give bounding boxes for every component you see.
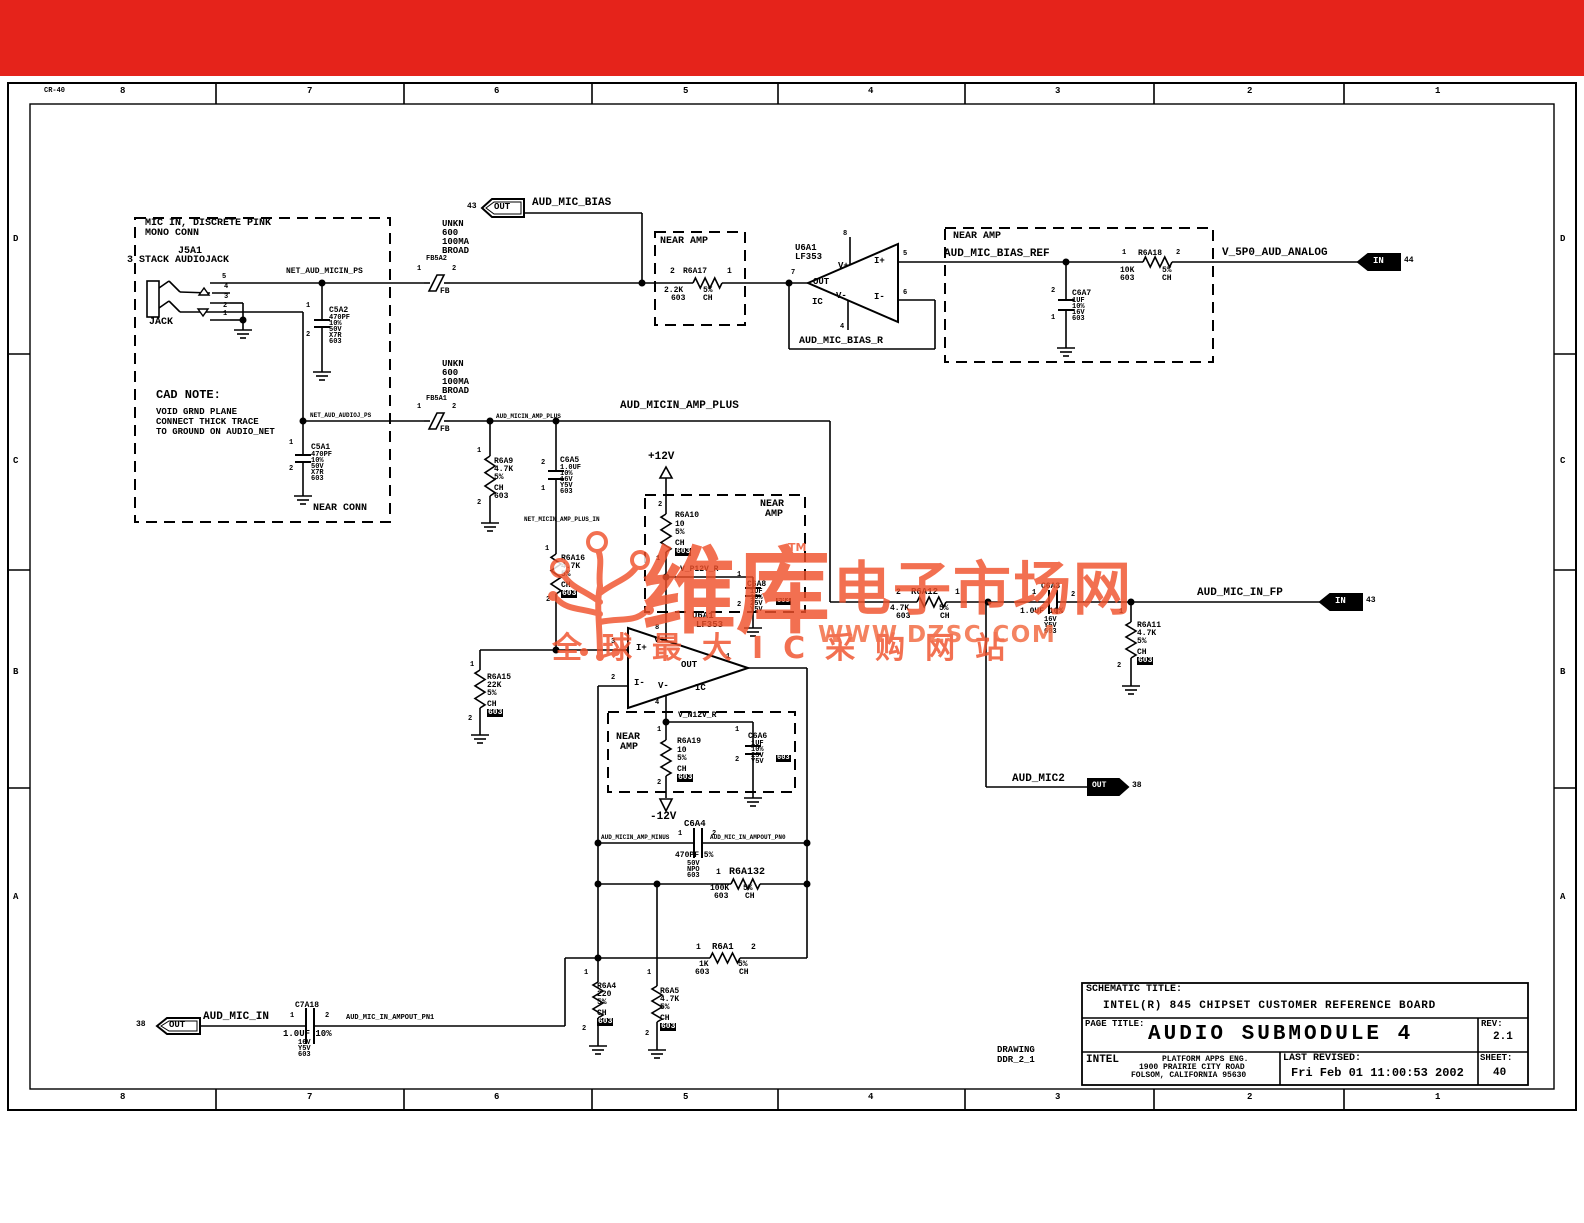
schematic-text: 1.0UF 10%: [283, 1030, 332, 1039]
pin-number: 2: [737, 602, 741, 609]
schematic-text: 603: [311, 476, 324, 483]
frame-zone-label: 4: [868, 1093, 873, 1102]
schematic-text: Y5V: [751, 759, 764, 766]
schematic-text: 603: [714, 893, 728, 901]
refdes: R6A19: [677, 738, 701, 746]
pin-number: 2: [896, 589, 901, 597]
schematic-text: CH: [1162, 275, 1172, 283]
schematic-text: CAD NOTE:: [156, 389, 221, 401]
schematic-text: AMP: [620, 743, 638, 753]
net-label: AUD_MICIN_AMP_PLUS: [496, 414, 561, 420]
pin-number: 1: [647, 970, 651, 977]
refdes: R6A10: [675, 512, 699, 520]
frame-zone-label: 3: [1055, 87, 1060, 96]
out-connector-label: OUT: [494, 203, 510, 212]
schematic-text: 603: [329, 339, 342, 346]
company-name: INTEL: [1086, 1055, 1119, 1066]
schematic-text: V+: [838, 262, 849, 271]
pin-number: 1: [223, 311, 227, 318]
refdes: FB5A2: [426, 256, 447, 263]
connector-number: 38: [1132, 782, 1142, 790]
pin-number: 2: [611, 675, 615, 682]
pin-number: 1: [541, 486, 545, 493]
pin-number: 1: [417, 266, 421, 273]
schematic-text: V-: [836, 292, 847, 301]
net-label: NET_MICIN_AMP_PLUS_IN: [524, 517, 600, 523]
net-label: AUD_MIC_IN_AMPOUT_PN1: [346, 1015, 434, 1022]
frame-zone-label: B: [13, 668, 18, 677]
pin-number: 1: [1051, 315, 1055, 322]
connector-number: 44: [1404, 257, 1414, 265]
schematic-text: 3 STACK AUDIOJACK: [127, 256, 229, 266]
frame-corner-label: CR-40: [44, 88, 65, 95]
frame-zone-label: 1: [1435, 87, 1440, 96]
schematic-text: CH: [940, 613, 950, 621]
schematic-text: I-: [634, 679, 645, 688]
pin-number: 1: [657, 727, 661, 734]
pin-number: 2: [546, 597, 550, 604]
schematic-text: NEAR AMP: [953, 232, 1001, 242]
pin-number: 1: [584, 970, 588, 977]
schematic-text: 1.0UF 10%: [1020, 608, 1063, 616]
out-connector-label: OUT: [169, 1021, 185, 1030]
schematic-text: LF353: [696, 621, 723, 630]
schematic-text: VOID GRND PLANE: [156, 408, 237, 417]
schematic-text: 5%: [487, 690, 497, 698]
pin-number: 8: [843, 231, 847, 238]
frame-zone-label: D: [13, 235, 18, 244]
schematic-text: CONNECT THICK TRACE: [156, 418, 259, 427]
frame-zone-label: 7: [307, 87, 312, 96]
net-label: V_5P0_AUD_ANALOG: [1222, 248, 1328, 259]
refdes: R6A18: [1138, 250, 1162, 258]
schematic-text: 603: [597, 1018, 613, 1026]
pin-number: 1: [656, 556, 660, 563]
schematic-text: IC: [695, 684, 706, 693]
schematic-text: OUT: [681, 661, 697, 670]
schematic-text: FB: [440, 426, 450, 434]
schematic-text: 603: [896, 613, 910, 621]
pin-number: 1: [417, 404, 421, 411]
schematic-text: 603: [561, 590, 577, 598]
pin-number: 2: [223, 303, 227, 310]
pin-number: 8: [655, 625, 659, 632]
pin-number: 3: [611, 639, 615, 646]
schematic-text: NEAR AMP: [660, 237, 708, 247]
pin-number: 2: [645, 1031, 649, 1038]
refdes: C6A3: [1041, 583, 1060, 591]
pin-number: 2: [582, 1026, 586, 1033]
pin-number: 1: [726, 654, 730, 661]
schematic-text: 603: [776, 598, 791, 605]
schematic-text: CH: [703, 295, 713, 303]
refdes: R6A1: [712, 943, 734, 952]
page-title-label: PAGE TITLE:: [1085, 1020, 1144, 1029]
schematic-text: I+: [874, 257, 885, 266]
schematic-text: NEAR CONN: [313, 504, 367, 514]
net-label: AUD_MIC2: [1012, 774, 1065, 785]
pin-number: 1: [737, 572, 741, 579]
sheet-number: 40: [1493, 1068, 1506, 1079]
schematic-text: 603: [487, 709, 503, 717]
schematic-text: 5%: [677, 755, 687, 763]
net-label: AUD_MIC_IN: [203, 1012, 269, 1023]
pin-number: 1: [289, 440, 293, 447]
schematic-text: 5%: [660, 1004, 670, 1012]
page-title: AUDIO SUBMODULE 4: [1148, 1024, 1413, 1045]
rev-value: 2.1: [1493, 1032, 1513, 1043]
frame-zone-label: A: [13, 893, 18, 902]
pin-number: 6: [903, 290, 907, 297]
frame-zone-label: D: [1560, 235, 1565, 244]
pin-number: 2: [1176, 250, 1180, 257]
frame-zone-label: 2: [1247, 87, 1252, 96]
wire-segments: [180, 213, 1358, 1050]
schematic-text: LF353: [795, 253, 822, 262]
net-label: AUD_MIC_IN_FP: [1197, 588, 1283, 599]
pin-number: 2: [1117, 663, 1121, 670]
frame-zone-label: 4: [868, 87, 873, 96]
net-label: NET_AUD_MICIN_PS: [286, 268, 363, 276]
schematic-text: CH: [739, 969, 749, 977]
schematic-text: 5%: [494, 474, 504, 482]
schematic-text: I+: [636, 644, 647, 653]
resistor-symbols: [475, 257, 1172, 1022]
pin-number: 2: [306, 332, 310, 339]
schematic-text: 603: [1044, 629, 1057, 636]
schematic-text: AMP: [765, 510, 783, 520]
pin-number: 2: [670, 268, 675, 276]
net-label: V_N12V_R: [678, 712, 716, 720]
frame-zone-label: 5: [683, 87, 688, 96]
ground-symbols: [234, 330, 1140, 1058]
last-revised-value: Fri Feb 01 11:00:53 2002: [1291, 1067, 1464, 1079]
schematic-text: 5%: [1137, 638, 1147, 646]
net-label: AUD_MICIN_AMP_PLUS: [620, 401, 739, 412]
schematic-text: MONO CONN: [145, 229, 199, 239]
last-revised-label: LAST REVISED:: [1283, 1054, 1361, 1064]
pin-number: 7: [791, 270, 795, 277]
pin-number: 2: [1051, 288, 1055, 295]
schematic-text: 603: [660, 1023, 676, 1031]
in-connector-label: IN: [1373, 257, 1384, 266]
frame-zone-label: 8: [120, 87, 125, 96]
pin-number: 1: [290, 1013, 294, 1020]
net-label: V_P12V_R: [680, 566, 718, 574]
pin-number: 2: [658, 502, 662, 509]
schematic-text: 603: [671, 295, 685, 303]
schematic-text: 470PF 5%: [675, 852, 713, 860]
pin-number: 2: [452, 404, 456, 411]
pin-number: 2: [541, 460, 545, 467]
pin-number: 1: [716, 869, 721, 877]
net-label: AUD_MIC_BIAS_REF: [944, 249, 1050, 260]
schematic-text: TO GROUND ON AUDIO_NET: [156, 428, 275, 437]
frame-zone-label: A: [1560, 893, 1565, 902]
in-connector-label: IN: [1335, 597, 1346, 606]
frame-zone-label: 7: [307, 1093, 312, 1102]
refdes: FB5A1: [426, 396, 447, 403]
pin-number: 3: [224, 294, 228, 301]
pin-number: 2: [735, 757, 739, 764]
refdes: C7A18: [295, 1002, 319, 1010]
frame-zone-label: 5: [683, 1093, 688, 1102]
pin-number: 1: [727, 268, 732, 276]
refdes: R6A17: [683, 268, 707, 276]
net-label: AUD_MIC_IN_AMPOUT_PN0: [710, 835, 786, 841]
pin-number: 2: [712, 831, 716, 838]
pin-number: 2: [325, 1013, 329, 1020]
schematic-text: 603: [675, 548, 691, 556]
pin-number: 4: [840, 324, 844, 331]
schematic-text: 603: [1120, 275, 1134, 283]
power-label: -12V: [650, 812, 676, 823]
frame-zone-label: 2: [1247, 1093, 1252, 1102]
schematic-text: 603: [298, 1052, 311, 1059]
drawing-number: DDR_2_1: [997, 1056, 1035, 1065]
schematic-text: 603: [776, 755, 791, 762]
company-address2: FOLSOM, CALIFORNIA 95630: [1131, 1072, 1246, 1080]
drawing-label: DRAWING: [997, 1046, 1035, 1055]
pin-number: 4: [655, 700, 659, 707]
schematic-text: IC: [812, 298, 823, 307]
frame-zone-label: B: [1560, 668, 1565, 677]
schematic-text: 603: [695, 969, 709, 977]
frame-zone-label: 8: [120, 1093, 125, 1102]
sheet-label: SHEET:: [1480, 1054, 1512, 1063]
pin-number: 1: [545, 546, 549, 553]
pin-number: 1: [1032, 590, 1036, 597]
schematic-text: FB: [440, 288, 450, 296]
frame-zone-label: C: [13, 457, 18, 466]
connector-number: 43: [1366, 597, 1376, 605]
power-label: +12V: [648, 452, 674, 463]
pin-number: 2: [452, 266, 456, 273]
schematic-text: Y5V: [750, 607, 763, 614]
pin-number: 2: [468, 716, 472, 723]
pin-number: 1: [1119, 609, 1123, 616]
refdes: C6A4: [684, 820, 706, 829]
pin-number: 5: [903, 251, 907, 258]
pin-number: 1: [955, 589, 960, 597]
net-label: AUD_MIC_BIAS: [532, 198, 611, 209]
frame-zone-label: 6: [494, 87, 499, 96]
net-label: AUD_MICIN_AMP_MINUS: [601, 835, 669, 841]
pin-number: 1: [306, 303, 310, 310]
pin-number: 1: [470, 662, 474, 669]
refdes: R6A12: [911, 588, 938, 597]
pin-number: 1: [696, 944, 701, 952]
frame-zone-label: 1: [1435, 1093, 1440, 1102]
schematic-text: 5%: [597, 999, 607, 1007]
frame-zone-label: C: [1560, 457, 1565, 466]
pin-number: 4: [224, 284, 228, 291]
schematic-text: 5%: [675, 529, 685, 537]
pin-number: 1: [735, 727, 739, 734]
connector-number: 38: [136, 1021, 146, 1029]
pin-number: 2: [289, 466, 293, 473]
connector-number: 43: [467, 203, 477, 211]
dashed-region-boxes: [135, 218, 1213, 792]
frame-zone-label: 6: [494, 1093, 499, 1102]
schematic-text: 603: [494, 493, 508, 501]
schematic-text: 5%: [561, 571, 571, 579]
frame-zone-label: 3: [1055, 1093, 1060, 1102]
rev-label: REV:: [1481, 1020, 1503, 1029]
ferrite-bead-symbols: [424, 275, 450, 429]
pin-number: 1: [477, 448, 481, 455]
pin-number: 2: [751, 944, 756, 952]
out-connector-label: OUT: [1092, 782, 1106, 790]
schematic-text: V+: [654, 636, 665, 645]
pin-number: 1: [1122, 250, 1126, 257]
schematic-text: 603: [687, 873, 700, 880]
pin-number: 5: [222, 274, 226, 281]
refdes: R6A132: [729, 868, 765, 878]
schematic-text: 603: [677, 774, 693, 782]
schematic-text: 603: [560, 489, 573, 496]
schematic-text: I-: [874, 293, 885, 302]
schematic-title: INTEL(R) 845 CHIPSET CUSTOMER REFERENCE …: [1103, 1001, 1436, 1012]
schematic-text: OUT: [813, 278, 829, 287]
pin-number: 1: [678, 831, 682, 838]
audio-jack-symbol: [147, 281, 209, 317]
schematic-text: 603: [1072, 316, 1085, 323]
pin-number: 2: [1071, 592, 1075, 599]
schematic-text: JACK: [149, 318, 173, 328]
pin-number: 2: [657, 780, 661, 787]
pin-number: 2: [477, 500, 481, 507]
schematic-text: CH: [745, 893, 755, 901]
net-label: NET_AUD_AUDIOJ_PS: [310, 413, 371, 419]
schematic-text: 603: [1137, 657, 1153, 665]
schematic-sheet: MIC IN, DISCRETE PINKMONO CONNJ5A13 STAC…: [0, 0, 1584, 1223]
schematic-text: V-: [658, 682, 669, 691]
net-label: AUD_MIC_BIAS_R: [799, 337, 883, 347]
schematic-title-label: SCHEMATIC TITLE:: [1086, 985, 1182, 995]
